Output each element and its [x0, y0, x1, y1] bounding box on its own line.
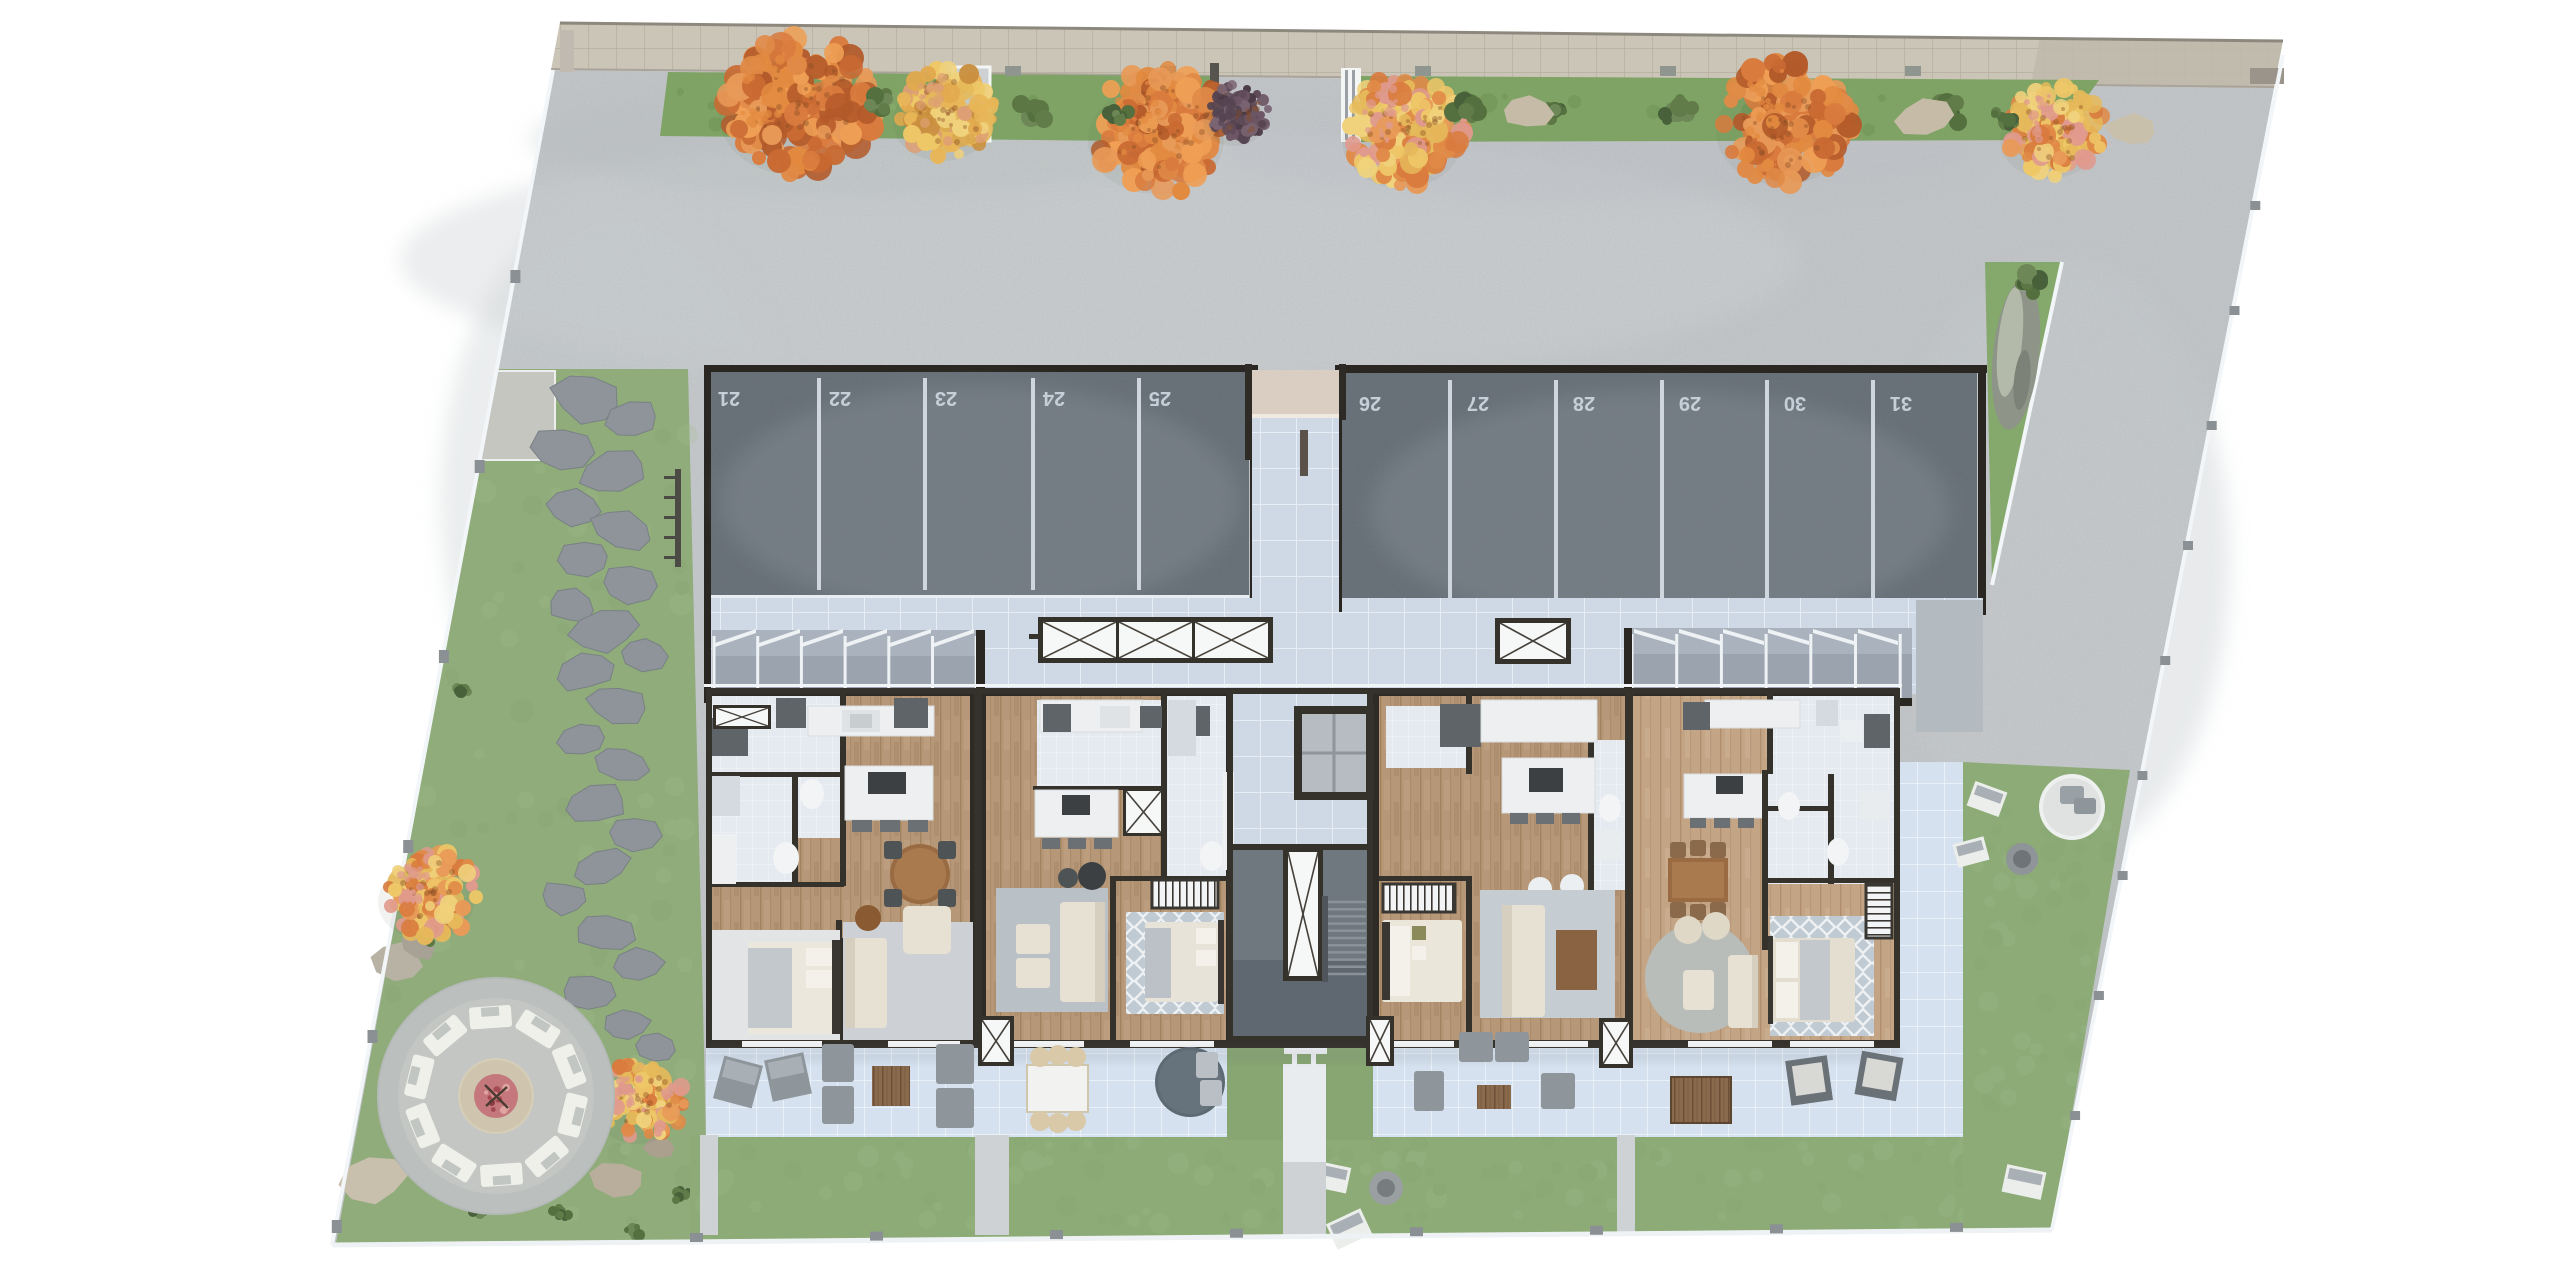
- svg-text:22: 22: [829, 387, 851, 409]
- svg-text:27: 27: [1467, 392, 1489, 414]
- svg-text:25: 25: [1149, 387, 1171, 409]
- svg-text:30: 30: [1784, 392, 1806, 414]
- svg-text:21: 21: [718, 387, 740, 409]
- svg-text:26: 26: [1359, 392, 1381, 414]
- svg-text:29: 29: [1679, 392, 1701, 414]
- svg-text:28: 28: [1573, 392, 1595, 414]
- svg-text:31: 31: [1890, 392, 1912, 414]
- svg-text:24: 24: [1042, 387, 1065, 409]
- svg-text:23: 23: [935, 387, 957, 409]
